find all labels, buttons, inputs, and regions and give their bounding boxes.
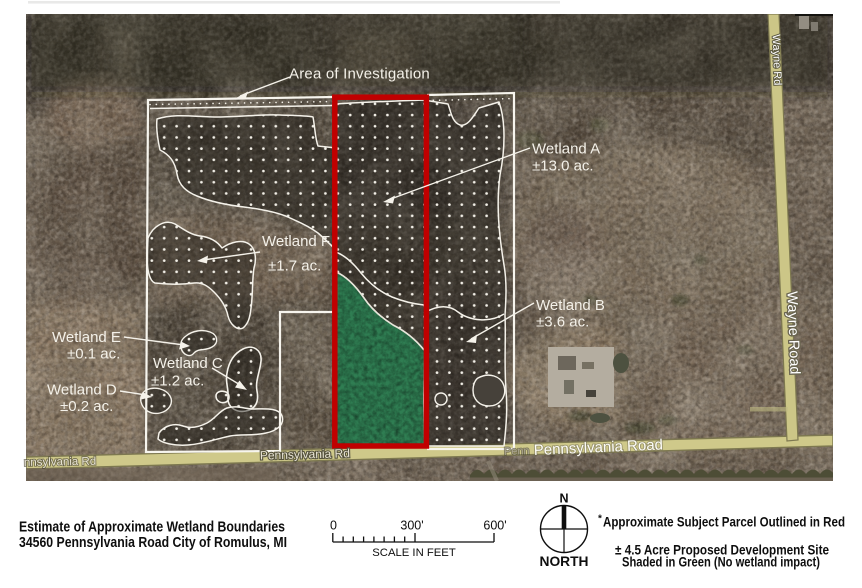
- svg-text:Approximate Subject Parcel Out: Approximate Subject Parcel Outlined in R…: [603, 515, 845, 530]
- svg-text:Pennsylvania Rd: Pennsylvania Rd: [260, 446, 350, 462]
- svg-text:Wetland C: Wetland C: [153, 355, 223, 372]
- svg-text:±1.2 ac.: ±1.2 ac.: [151, 373, 204, 390]
- svg-text:Area of Investigation: Area of Investigation: [289, 66, 430, 83]
- svg-text:600': 600': [483, 519, 506, 533]
- svg-text:±0.1 ac.: ±0.1 ac.: [67, 346, 120, 363]
- svg-text:Wayne Road: Wayne Road: [784, 291, 803, 375]
- svg-text:N: N: [559, 492, 568, 506]
- svg-text:Wetland E: Wetland E: [52, 329, 121, 346]
- svg-text:Wetland D: Wetland D: [47, 382, 117, 399]
- svg-text:SCALE IN FEET: SCALE IN FEET: [372, 547, 456, 559]
- svg-text:Wayne Rd: Wayne Rd: [770, 34, 784, 85]
- svg-text:Wetland F: Wetland F: [262, 233, 330, 250]
- svg-text:Wetland A: Wetland A: [532, 141, 600, 158]
- svg-text:*: *: [598, 514, 602, 525]
- svg-text:Penn: Penn: [504, 445, 530, 458]
- svg-text:Shaded in Green (No wetland im: Shaded in Green (No wetland impact): [622, 555, 820, 570]
- svg-text:±3.6 ac.: ±3.6 ac.: [536, 314, 589, 331]
- svg-text:±0.2 ac.: ±0.2 ac.: [60, 398, 113, 415]
- svg-text:34560 Pennsylvania Road City o: 34560 Pennsylvania Road City of Romulus,…: [19, 534, 287, 551]
- svg-text:nnsylvania Rd: nnsylvania Rd: [24, 456, 96, 469]
- svg-text:±1.7 ac.: ±1.7 ac.: [268, 258, 321, 275]
- svg-text:300': 300': [400, 519, 423, 533]
- svg-text:NORTH: NORTH: [540, 553, 589, 569]
- svg-text:±13.0 ac.: ±13.0 ac.: [532, 158, 594, 175]
- svg-text:0: 0: [330, 519, 337, 533]
- svg-text:Wetland B: Wetland B: [536, 297, 605, 314]
- svg-text:Estimate of Approximate Wetlan: Estimate of Approximate Wetland Boundari…: [19, 519, 285, 536]
